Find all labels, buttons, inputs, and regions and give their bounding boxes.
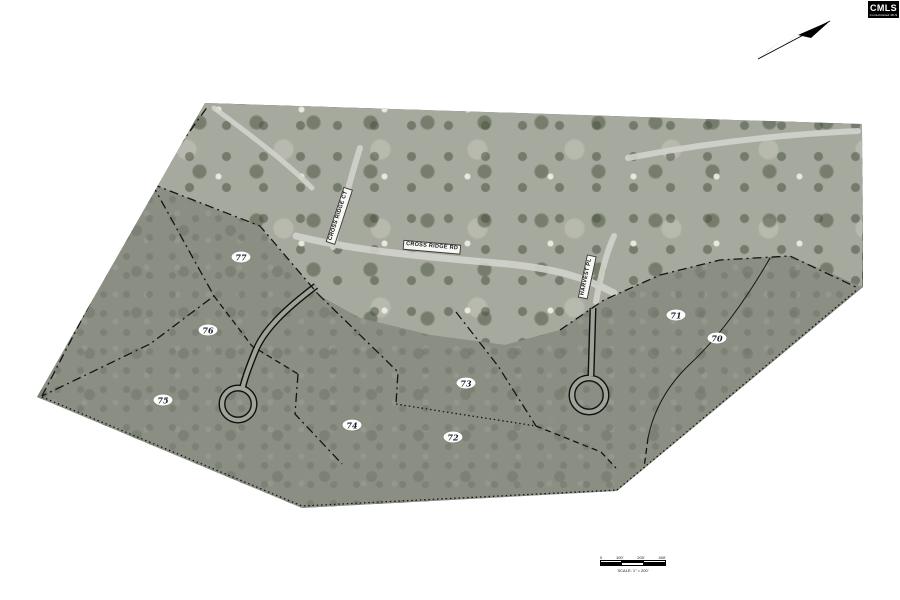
cmls-logo-text: CMLS <box>868 3 899 13</box>
lot-label-74: 74 <box>343 420 362 431</box>
scale-segment <box>622 563 643 565</box>
scale-tick-3: 400' <box>659 555 666 560</box>
lot-label-71: 70 <box>708 333 727 344</box>
scale-segment <box>601 563 622 565</box>
scale-tick-0: 0 <box>600 555 602 560</box>
north-arrow-feather-mid <box>781 32 800 48</box>
plat-map-page: 77 76 75 74 73 72 70 71 CROSS RIDGE RD C… <box>0 0 900 600</box>
lot-label-76: 76 <box>199 325 218 336</box>
north-arrow-head <box>798 21 830 38</box>
scale-tick-2: 200' <box>637 555 644 560</box>
lot-label-72: 72 <box>444 432 463 443</box>
cmls-logo: CMLS Consolidated MLS <box>868 1 899 18</box>
lot-label-77: 77 <box>232 252 251 263</box>
north-arrow-icon <box>748 12 838 62</box>
scale-tick-1: 100' <box>616 555 623 560</box>
scale-segment <box>644 563 665 565</box>
lot-label-70: 71 <box>667 310 686 321</box>
lot-label-75: 75 <box>154 395 173 406</box>
scale-caption: SCALE: 1" = 200' <box>600 568 666 573</box>
aerial-photo: 77 76 75 74 73 72 70 71 CROSS RIDGE RD C… <box>0 0 900 600</box>
scale-bar-graphic <box>600 560 666 566</box>
cmls-logo-subtext: Consolidated MLS <box>868 13 899 17</box>
lot-label-73: 73 <box>457 378 476 389</box>
scale-bar: 0 100' 200' 400' SCALE: 1" = 200' <box>600 555 666 573</box>
north-arrow-feather-tail <box>760 41 780 58</box>
